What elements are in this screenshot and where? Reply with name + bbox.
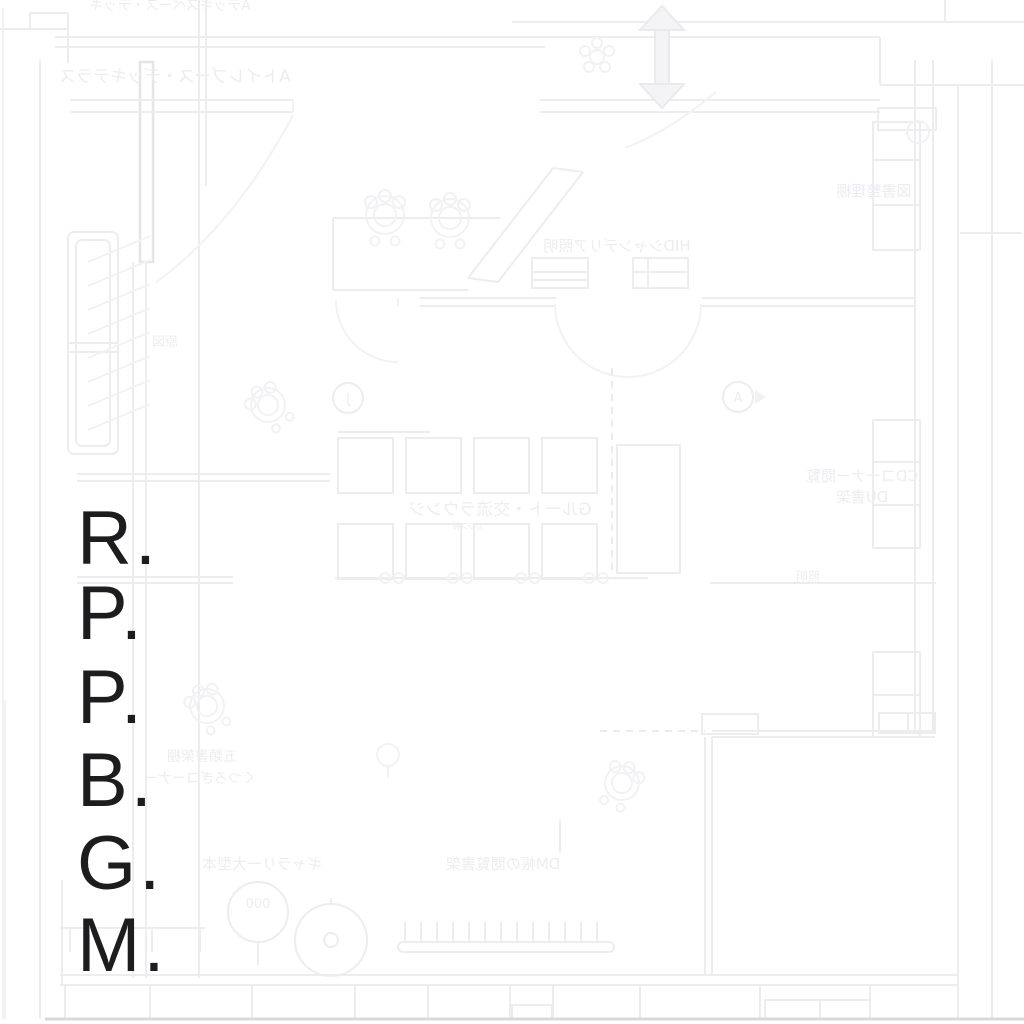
label-right-1: CDコーナー閲覧 (806, 467, 918, 485)
circled-marker-j: J (333, 383, 363, 413)
label-upper-left: Aトイレブース・デッキテラス (59, 66, 290, 87)
label-right-2: DU書架 (836, 488, 889, 506)
title-letter-g: G. (77, 826, 163, 902)
label-stool-number: 000 (246, 897, 271, 912)
title-letter-b: B. (77, 743, 155, 819)
label-counter: HIDシャンデリア照明 (543, 237, 690, 255)
title-letter-m: M. (77, 908, 168, 984)
label-center-small: ガラス棚 (452, 521, 484, 531)
label-lower-left-1: 五類書架棚 (167, 749, 237, 765)
label-right-shelf: 図書整理棚 (836, 182, 911, 200)
album-cover: J A Aデッキスペース・デッキ Aトイレブース・デッキテラス HIDシャンデリ… (0, 0, 1024, 1024)
label-lower-left-2: くつろぎコーナー (144, 771, 256, 787)
round-table-icon (295, 898, 367, 976)
title-letter-p1: P. (77, 576, 145, 652)
plan-annotations: Aデッキスペース・デッキ Aトイレブース・デッキテラス HIDシャンデリア照明 … (59, 0, 918, 912)
label-top-edge: Aデッキスペース・デッキ (89, 0, 250, 14)
label-right-small: 照明 (796, 570, 820, 584)
title-letter-p2: P. (77, 660, 145, 736)
marker-j-label: J (346, 392, 351, 407)
title-letter-r: R. (77, 501, 159, 577)
label-bottom-1: ギャラリー大型本 (202, 855, 322, 873)
reception-counter (333, 168, 688, 290)
marker-a-label: A (733, 391, 742, 406)
label-center: Gルート・交流ラウンジ (408, 500, 591, 520)
bike-rack (68, 232, 150, 454)
label-bottom-2: DM帳の閲覧書架 (446, 855, 561, 873)
plant-icon (580, 38, 614, 72)
label-rack: 原図 (152, 335, 178, 350)
circled-marker-a: A (723, 382, 766, 412)
magazine-rack-icon (398, 922, 614, 952)
